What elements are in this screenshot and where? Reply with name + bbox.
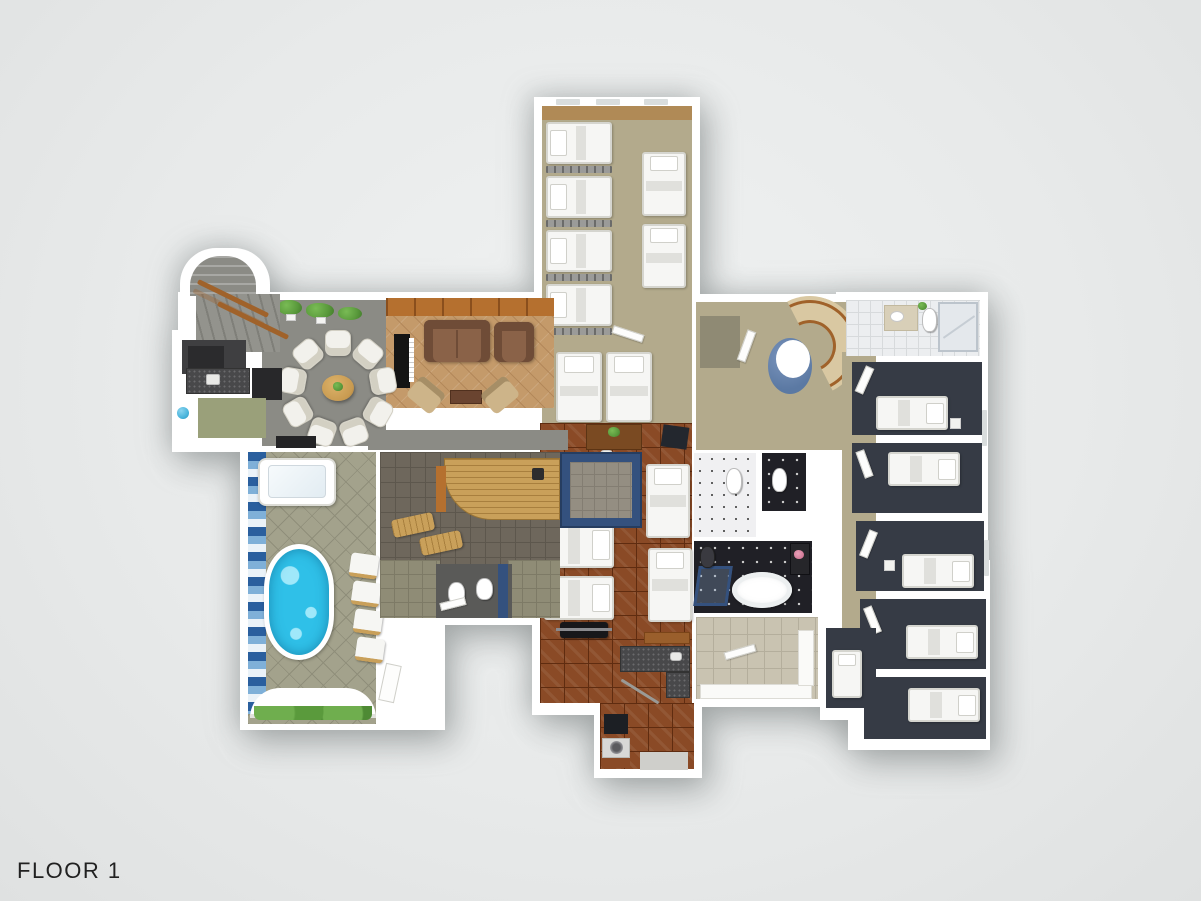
wall-plants bbox=[338, 307, 362, 320]
glass-shower-corner bbox=[693, 566, 733, 606]
floor-label: FLOOR 1 bbox=[17, 858, 122, 884]
tv-black bbox=[604, 714, 628, 734]
armchair bbox=[494, 322, 534, 362]
vanity-flowers bbox=[794, 550, 804, 559]
sauna-post bbox=[436, 466, 446, 512]
shower-stall-floor bbox=[694, 453, 756, 537]
upright-piano bbox=[394, 334, 410, 388]
wood-shelf bbox=[644, 632, 690, 644]
steam-shower-floor bbox=[570, 462, 632, 518]
bedroom-bed bbox=[908, 688, 980, 722]
parquet-room-bed bbox=[646, 464, 690, 538]
kitchen-floor bbox=[198, 398, 266, 438]
living-room-beam bbox=[386, 298, 554, 316]
wall-plants bbox=[306, 303, 334, 318]
stair-core-top bbox=[776, 340, 810, 378]
bathroom-vanity-black bbox=[790, 543, 810, 575]
dorm-bed bbox=[546, 122, 612, 164]
twin-bed bbox=[606, 352, 652, 422]
nightstand bbox=[884, 560, 895, 571]
hot-tub-water bbox=[268, 465, 326, 498]
toilet bbox=[476, 578, 493, 600]
window bbox=[982, 410, 987, 446]
window bbox=[644, 99, 668, 105]
wood-cabinet bbox=[602, 758, 630, 768]
laundry-counter bbox=[700, 684, 812, 699]
desk-plant bbox=[608, 427, 620, 437]
coffee-table bbox=[450, 390, 482, 404]
console-cabinet bbox=[276, 436, 316, 448]
toilet bbox=[922, 308, 937, 332]
hall-closet-floor bbox=[700, 316, 740, 368]
lounge-chair bbox=[368, 366, 398, 396]
dorm-bed bbox=[546, 284, 612, 326]
lounge-chair bbox=[278, 366, 308, 396]
bathroom-sink bbox=[890, 311, 904, 322]
granite-counter-return bbox=[666, 672, 690, 698]
window bbox=[984, 540, 989, 576]
kitchen-cabinet-black bbox=[252, 368, 282, 400]
spa-corridor-floor bbox=[380, 560, 440, 618]
dorm-bed bbox=[642, 224, 686, 288]
swimming-pool bbox=[264, 544, 334, 660]
sauna-heater bbox=[532, 468, 544, 480]
media-cabinet bbox=[661, 424, 690, 449]
dorm-bed bbox=[546, 176, 612, 218]
exercise-ball-blue bbox=[177, 407, 189, 419]
dormitory-back-wall bbox=[542, 106, 692, 120]
window bbox=[596, 99, 620, 105]
corridor-floor bbox=[368, 430, 568, 450]
piano-keys bbox=[409, 338, 414, 382]
toilet bbox=[726, 468, 742, 494]
canvas-background: FLOOR 1 bbox=[0, 0, 1201, 901]
small-bedroom-bed bbox=[832, 650, 862, 698]
sofa-cushion-line bbox=[456, 330, 458, 358]
planter-pot bbox=[286, 314, 296, 321]
dorm-bed bbox=[546, 230, 612, 272]
toilet bbox=[772, 468, 787, 492]
luggage-bench bbox=[546, 274, 612, 281]
wc-partition-blue bbox=[498, 564, 508, 618]
spa-corridor-floor bbox=[508, 560, 560, 618]
closet-interior bbox=[188, 346, 224, 368]
lounge-chair bbox=[325, 330, 351, 356]
twin-bed bbox=[556, 352, 602, 422]
pool-lounger bbox=[348, 552, 379, 580]
bedroom-bed bbox=[888, 452, 960, 486]
window bbox=[556, 99, 580, 105]
nightstand bbox=[950, 418, 961, 429]
wall-plants bbox=[278, 300, 302, 315]
floor-plan bbox=[0, 0, 1201, 901]
washer-door bbox=[610, 741, 623, 754]
parquet-room-bed bbox=[648, 548, 692, 622]
entry-porch-floor bbox=[640, 752, 688, 770]
luggage-bench bbox=[546, 166, 612, 173]
bedroom-bed bbox=[876, 396, 948, 430]
counter-sink bbox=[670, 652, 682, 661]
dorm-bed bbox=[642, 152, 686, 216]
pool-lounger bbox=[350, 580, 381, 608]
exercise-bar bbox=[556, 628, 612, 631]
laundry-counter-right bbox=[798, 630, 814, 686]
freestanding-bathtub bbox=[732, 572, 792, 608]
bedroom-bed bbox=[906, 625, 978, 659]
toilet bbox=[700, 546, 715, 568]
garden-greenery bbox=[254, 706, 372, 720]
luggage-bench bbox=[546, 220, 612, 227]
luggage-bench bbox=[546, 328, 612, 335]
table-centerpiece bbox=[333, 382, 343, 391]
pool-lounger bbox=[354, 636, 385, 664]
planter-pot bbox=[316, 317, 326, 324]
kitchen-sink bbox=[206, 374, 220, 385]
bedroom-bed bbox=[902, 554, 974, 588]
pool-lounger bbox=[352, 608, 383, 636]
